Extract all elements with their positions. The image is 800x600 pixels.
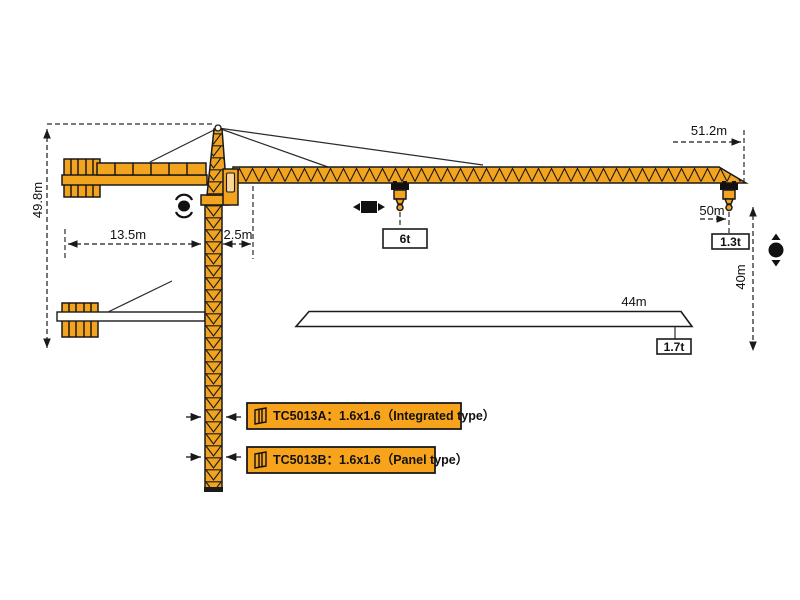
jib-tie-bar-outer	[218, 128, 483, 165]
base-ballast-assembly	[57, 281, 205, 337]
mid-trolley-hook	[391, 181, 409, 228]
apex-pin	[215, 125, 221, 131]
mid-hook-neck	[396, 199, 404, 204]
counterjib-tie-bar	[150, 128, 218, 162]
jib-tie-bar-inner	[218, 128, 328, 167]
mid-hook-block	[394, 190, 406, 199]
tip-load-badge: 1.3t	[712, 234, 749, 249]
trolley-travel-icon	[353, 201, 385, 213]
tip-hook-neck	[725, 199, 733, 204]
tip-trolley-frame	[720, 184, 738, 191]
mid-hook	[397, 205, 403, 211]
model-a-text: TC5013A：1.6x1.6（Integrated type）	[273, 408, 495, 423]
hook-radius-label: 50m	[699, 203, 724, 218]
hoist-icon	[769, 234, 784, 267]
hook-height-label: 40m	[733, 264, 748, 289]
crane-diagram-canvas: 13.5m 2.5m 51.2m 50m 44m 49.8m 40m 6t 1.…	[0, 0, 800, 600]
slewing-icon	[176, 195, 192, 218]
tip-hook	[726, 205, 732, 211]
tip-load-value: 1.3t	[720, 235, 741, 249]
span-length-label: 44m	[621, 294, 646, 309]
base-ballast-beam	[57, 312, 205, 321]
counter-jib	[62, 159, 207, 197]
main-jib	[233, 167, 746, 183]
jib-radius-label: 51.2m	[691, 123, 727, 138]
tie-bars	[150, 128, 483, 167]
model-b-text: TC5013B：1.6x1.6（Panel type）	[273, 452, 468, 467]
hook-load-value: 6t	[400, 232, 411, 246]
mast-bottom-cap	[204, 487, 223, 492]
span-beam-shape	[296, 312, 692, 327]
span-load-value: 1.7t	[664, 340, 685, 354]
tower-mast	[205, 205, 222, 488]
cab-window	[227, 173, 235, 192]
model-label-b: TC5013B：1.6x1.6（Panel type）	[247, 447, 468, 473]
model-label-a: TC5013A：1.6x1.6（Integrated type）	[247, 403, 495, 429]
tip-hook-block	[723, 190, 735, 199]
tower-offset-label: 2.5m	[224, 227, 253, 242]
counterjib-length-label: 13.5m	[110, 227, 146, 242]
span-load-beam	[296, 312, 692, 340]
hook-load-badge: 6t	[383, 229, 427, 248]
total-height-label: 49.8m	[30, 182, 45, 218]
counterjib-beam	[62, 175, 207, 185]
mid-trolley-frame	[391, 184, 409, 191]
span-load-badge: 1.7t	[657, 339, 691, 354]
crane-diagram: 13.5m 2.5m 51.2m 50m 44m 49.8m 40m 6t 1.…	[0, 0, 800, 600]
ballast-stay-line	[108, 281, 172, 312]
